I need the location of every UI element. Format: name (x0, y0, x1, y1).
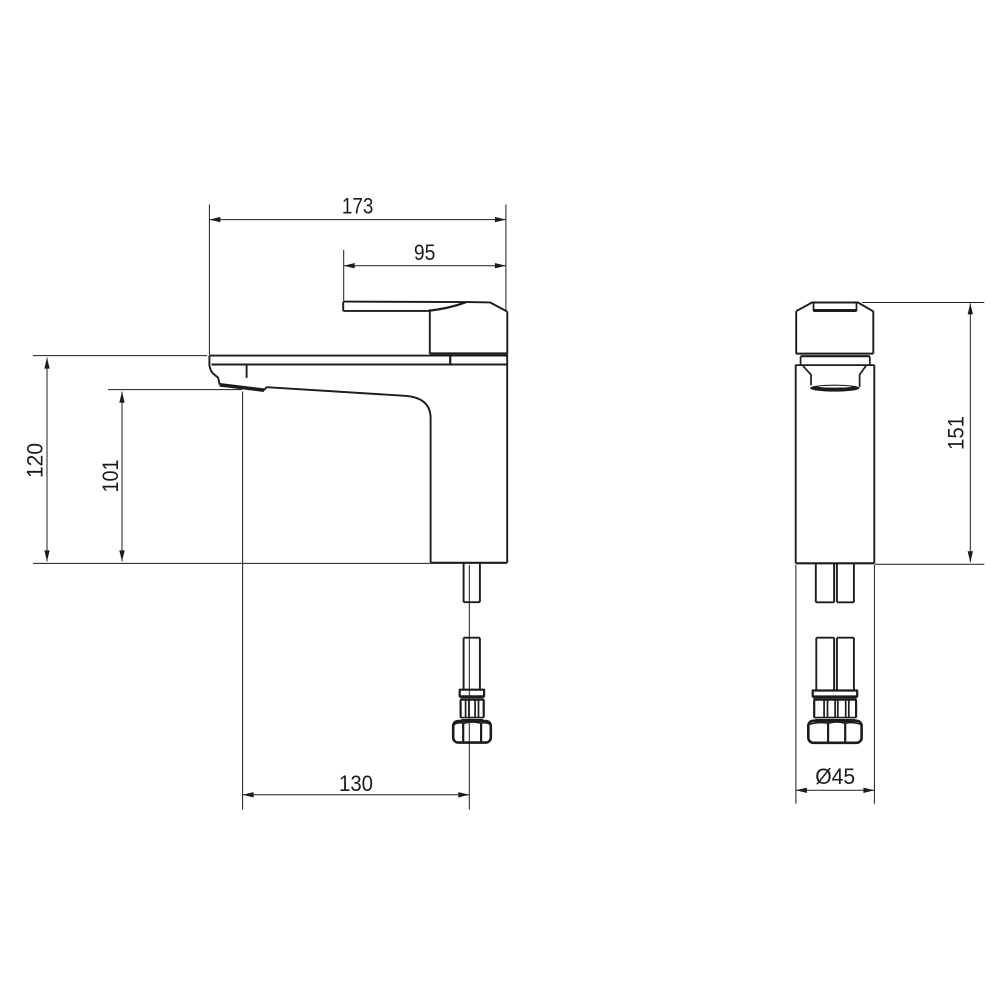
svg-text:95: 95 (414, 240, 436, 265)
svg-text:130: 130 (339, 771, 373, 796)
svg-text:173: 173 (342, 194, 374, 219)
svg-text:Ø45: Ø45 (815, 764, 855, 789)
svg-text:151: 151 (944, 416, 969, 450)
svg-text:101: 101 (98, 460, 123, 493)
svg-text:120: 120 (23, 443, 48, 478)
